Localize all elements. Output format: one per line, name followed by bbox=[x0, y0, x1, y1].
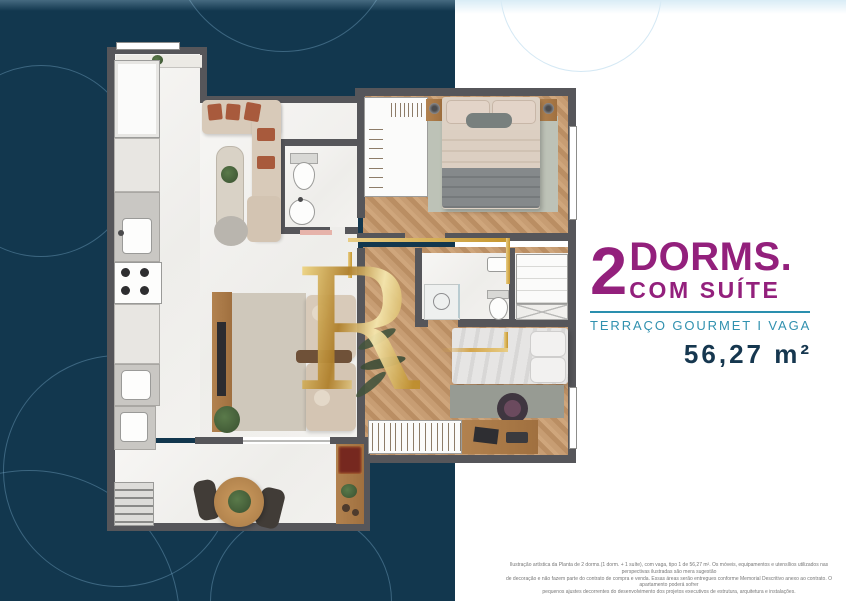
disclaimer-text: Ilustração artística da Planta de 2 dorm… bbox=[498, 562, 840, 596]
table-plant bbox=[228, 490, 251, 513]
hanger-icon bbox=[400, 103, 401, 117]
notebook bbox=[506, 432, 528, 443]
info-block: 2 DORMS. COM SUÍTE TERRAÇO GOURMET I VAG… bbox=[590, 241, 814, 370]
grill bbox=[114, 482, 154, 526]
hanger-icon bbox=[369, 187, 383, 188]
speaker-icon bbox=[543, 103, 554, 114]
sink-faucet bbox=[298, 197, 303, 202]
headline-number: 2 bbox=[590, 246, 625, 298]
brand-watermark: R bbox=[293, 247, 420, 415]
disclaimer-line: de decoração e não fazem parte do contra… bbox=[498, 576, 840, 590]
linen-shelves bbox=[516, 254, 568, 304]
hanger-icon bbox=[369, 158, 383, 159]
hanger-icon bbox=[369, 148, 383, 149]
stove-burner bbox=[121, 286, 130, 295]
page-canvas: R 2 DORMS. COM SUÍTE TERRAÇO GOURMET I V… bbox=[0, 0, 846, 601]
hanger-icon bbox=[442, 423, 443, 451]
shower-head-icon bbox=[433, 293, 450, 310]
crossed-shelf-symbol bbox=[516, 304, 568, 320]
hanger-icon bbox=[391, 103, 392, 117]
wall bbox=[195, 437, 243, 444]
closet-hangers bbox=[388, 101, 424, 121]
bed-pillow bbox=[530, 331, 566, 357]
speaker-icon bbox=[429, 103, 440, 114]
hanger-icon bbox=[404, 103, 405, 117]
disclaimer-line: pequenos ajustes decorrentes do desenvol… bbox=[498, 589, 840, 596]
hanger-icon bbox=[395, 103, 396, 117]
bedroom2-window bbox=[569, 387, 577, 449]
shower-glass bbox=[458, 284, 460, 318]
area-label: 56,27 m² bbox=[590, 339, 812, 370]
sofa-pillow bbox=[257, 128, 275, 141]
wall bbox=[355, 88, 576, 96]
hanger-icon bbox=[369, 139, 383, 140]
bowl bbox=[352, 509, 359, 516]
hanger-icon bbox=[408, 103, 409, 117]
pouf bbox=[214, 216, 248, 246]
hanger-icon bbox=[412, 103, 413, 117]
closet-hangers bbox=[367, 126, 387, 190]
teal-divider bbox=[590, 311, 810, 313]
wall bbox=[278, 139, 365, 146]
gold-line bbox=[506, 238, 510, 284]
headline-subtitle: COM SUÍTE bbox=[629, 277, 792, 304]
sofa-pillow bbox=[244, 102, 262, 122]
sideboard-plant bbox=[341, 484, 357, 498]
bed-duvet bbox=[442, 130, 540, 172]
kitchen-sink bbox=[122, 218, 152, 254]
features-line: TERRAÇO GOURMET I VAGA bbox=[590, 318, 814, 333]
coffee-table-plant bbox=[221, 166, 238, 183]
sofa-pillow bbox=[207, 103, 223, 120]
floor-plant bbox=[214, 406, 240, 433]
bowl bbox=[342, 504, 350, 512]
tv bbox=[217, 322, 226, 396]
stove-burner bbox=[140, 268, 149, 277]
gourmet-sink bbox=[120, 412, 148, 442]
bathroom2-sink bbox=[487, 257, 508, 272]
stove-burner bbox=[140, 286, 149, 295]
bed-blanket bbox=[442, 168, 540, 208]
hanger-icon bbox=[369, 177, 383, 178]
bathroom-sink bbox=[289, 199, 315, 225]
laptop bbox=[473, 427, 499, 445]
stove bbox=[114, 262, 162, 304]
hanger-icon bbox=[369, 129, 383, 130]
stove-burner bbox=[121, 268, 130, 277]
hanger-icon bbox=[454, 423, 455, 451]
bed-pillow bbox=[530, 357, 566, 383]
kitchen-faucet bbox=[118, 230, 124, 236]
sofa-chaise bbox=[247, 196, 281, 242]
desk-chair-cushion bbox=[504, 400, 521, 417]
lumbar-pillow bbox=[466, 113, 512, 128]
artwork bbox=[338, 446, 362, 474]
hanger-icon bbox=[425, 423, 426, 451]
hanger-icon bbox=[437, 423, 438, 451]
kitchen-window bbox=[116, 42, 180, 50]
refrigerator bbox=[114, 60, 160, 138]
sliding-door-track bbox=[243, 440, 330, 442]
wall bbox=[357, 455, 576, 463]
hanger-icon bbox=[448, 423, 449, 451]
hanger-icon bbox=[417, 103, 418, 117]
headline: 2 DORMS. COM SUÍTE bbox=[590, 241, 814, 304]
wall bbox=[458, 319, 576, 327]
tank-basin bbox=[121, 370, 151, 400]
gold-line bbox=[440, 348, 508, 352]
hanger-icon bbox=[460, 423, 461, 451]
sofa-pillow bbox=[257, 156, 275, 169]
headline-title: DORMS. bbox=[629, 241, 792, 274]
hanger-icon bbox=[431, 423, 432, 451]
kitchen-cabinet bbox=[114, 138, 160, 192]
disclaimer-line: Ilustração artística da Planta de 2 dorm… bbox=[498, 562, 840, 576]
suite-window bbox=[569, 126, 577, 220]
service-counter bbox=[114, 304, 160, 364]
hanger-icon bbox=[369, 168, 383, 169]
sofa-pillow bbox=[225, 103, 240, 120]
hanger-icon bbox=[421, 103, 422, 117]
